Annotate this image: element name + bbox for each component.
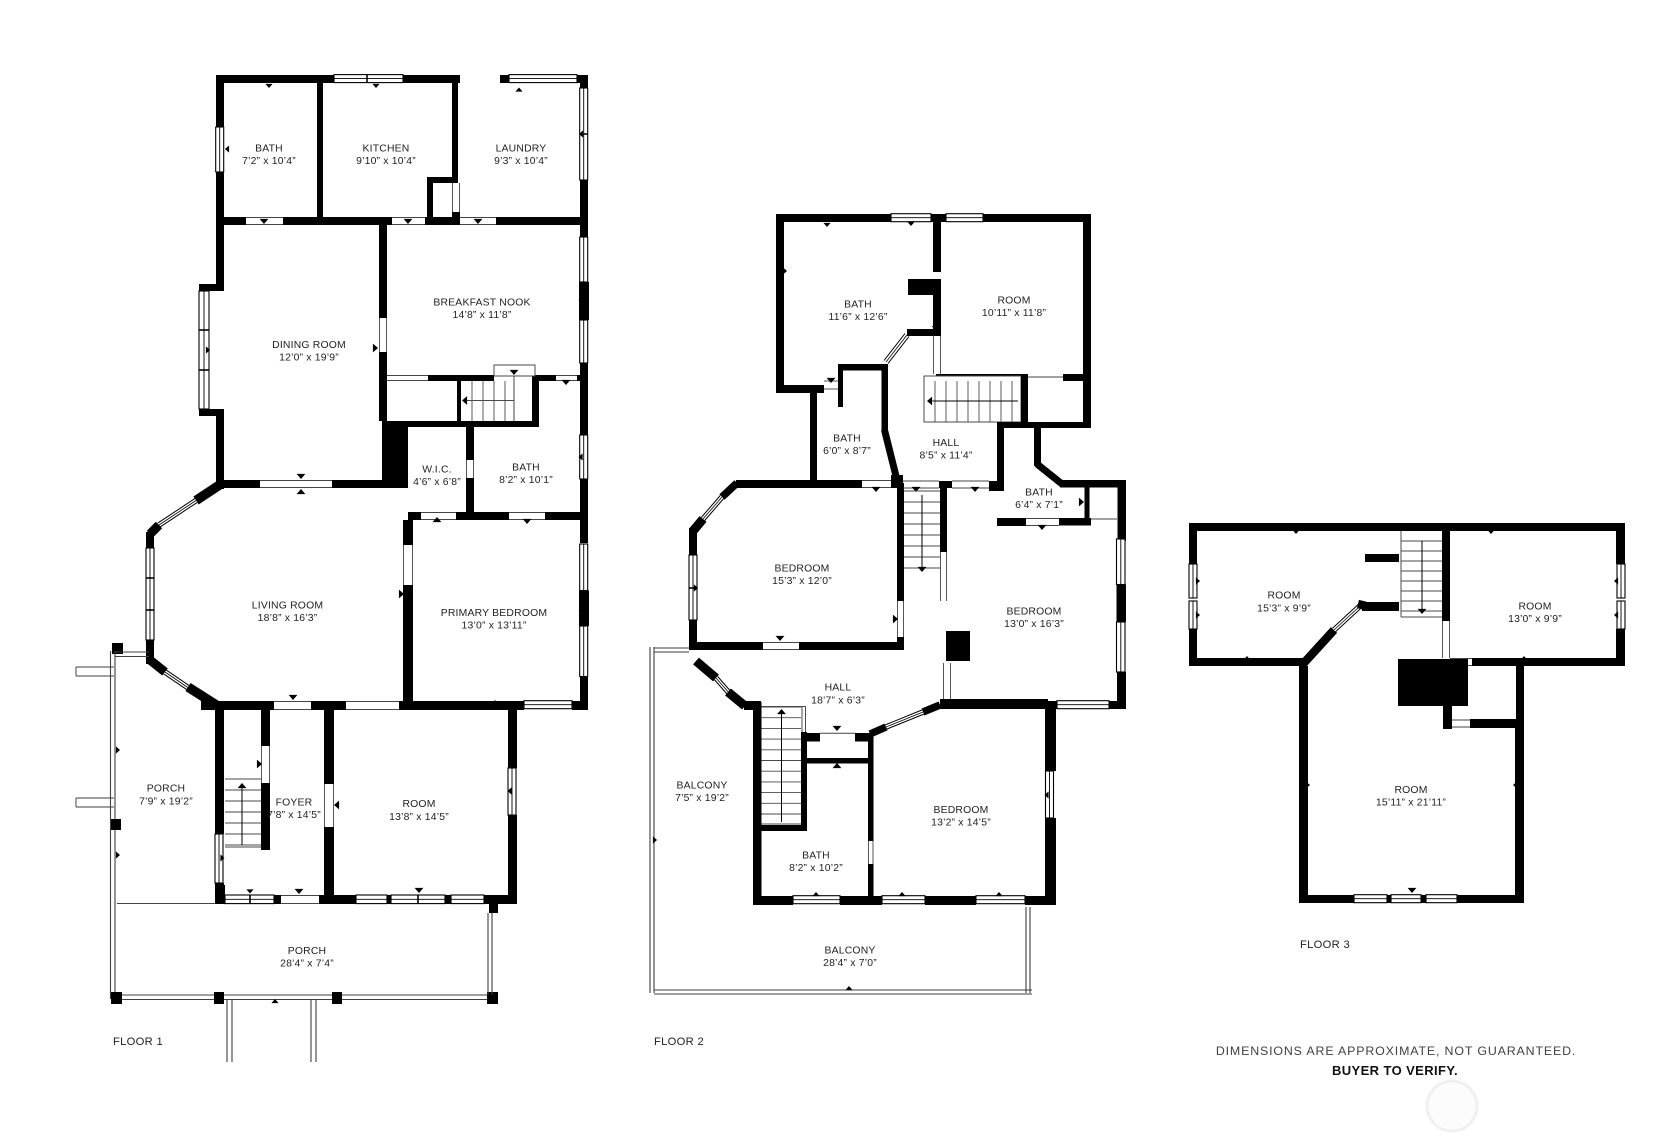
svg-text:ROOM: ROOM xyxy=(1394,785,1427,796)
svg-text:15’11” x 21’11”: 15’11” x 21’11” xyxy=(1376,798,1447,809)
svg-text:BATH: BATH xyxy=(802,850,830,861)
svg-text:14’8” x 11’8”: 14’8” x 11’8” xyxy=(452,310,511,321)
svg-text:7’9” x 19’2”: 7’9” x 19’2” xyxy=(139,796,193,807)
svg-text:9’10” x 10’4”: 9’10” x 10’4” xyxy=(356,156,416,167)
svg-text:15’3” x 12’0”: 15’3” x 12’0” xyxy=(772,576,832,587)
svg-text:FOYER: FOYER xyxy=(276,797,313,808)
svg-text:9’3” x 10’4”: 9’3” x 10’4” xyxy=(494,156,548,167)
svg-text:PORCH: PORCH xyxy=(147,784,186,795)
svg-text:28’4” x 7’4”: 28’4” x 7’4” xyxy=(280,959,334,970)
svg-text:FLOOR 1: FLOOR 1 xyxy=(113,1036,163,1048)
svg-text:BATH: BATH xyxy=(512,462,540,473)
svg-text:13’2” x 14’5”: 13’2” x 14’5” xyxy=(931,817,991,828)
svg-text:W.I.C.: W.I.C. xyxy=(422,464,452,475)
svg-text:PORCH: PORCH xyxy=(288,946,327,957)
svg-text:BATH: BATH xyxy=(844,300,872,311)
svg-text:LIVING ROOM: LIVING ROOM xyxy=(252,600,323,611)
svg-text:7’2” x 10’4”: 7’2” x 10’4” xyxy=(242,156,296,167)
svg-text:8’5” x 11’4”: 8’5” x 11’4” xyxy=(919,451,972,462)
svg-text:HALL: HALL xyxy=(933,438,960,449)
svg-text:DINING ROOM: DINING ROOM xyxy=(272,340,346,351)
svg-text:BATH: BATH xyxy=(833,434,861,445)
svg-text:18’7” x 6’3”: 18’7” x 6’3” xyxy=(811,695,865,706)
svg-text:13’0” x 16’3”: 13’0” x 16’3” xyxy=(1004,619,1064,630)
svg-text:BATH: BATH xyxy=(255,143,283,154)
svg-text:6’4” x 7’1”: 6’4” x 7’1” xyxy=(1015,500,1063,511)
svg-text:8’2” x 10’1”: 8’2” x 10’1” xyxy=(499,475,553,486)
svg-text:15’3” x 9’9”: 15’3” x 9’9” xyxy=(1257,603,1311,614)
svg-text:KITCHEN: KITCHEN xyxy=(362,143,409,154)
svg-text:6’0” x 8’7”: 6’0” x 8’7” xyxy=(823,446,871,457)
svg-text:BUYER TO VERIFY.: BUYER TO VERIFY. xyxy=(1332,1063,1458,1078)
svg-text:28’4” x 7’0”: 28’4” x 7’0” xyxy=(823,958,877,969)
svg-text:FLOOR 3: FLOOR 3 xyxy=(1300,939,1350,951)
svg-text:13’0” x 13’11”: 13’0” x 13’11” xyxy=(462,621,527,632)
svg-text:BATH: BATH xyxy=(1025,488,1053,499)
svg-text:13’8” x 14’5”: 13’8” x 14’5” xyxy=(389,812,449,823)
svg-text:8’2” x 10’2”: 8’2” x 10’2” xyxy=(789,863,843,874)
svg-text:ROOM: ROOM xyxy=(1518,601,1551,612)
svg-text:BREAKFAST NOOK: BREAKFAST NOOK xyxy=(433,297,530,308)
svg-text:4’6” x 6’8”: 4’6” x 6’8” xyxy=(413,477,461,488)
svg-text:12’0” x 19’9”: 12’0” x 19’9” xyxy=(279,352,339,363)
svg-text:BEDROOM: BEDROOM xyxy=(1006,607,1061,618)
svg-text:FLOOR 2: FLOOR 2 xyxy=(654,1036,704,1048)
svg-text:7’8” x 14’5”: 7’8” x 14’5” xyxy=(267,810,321,821)
svg-text:11’6” x 12’6”: 11’6” x 12’6” xyxy=(828,312,887,323)
svg-text:18’8” x 16’3”: 18’8” x 16’3” xyxy=(258,613,318,624)
svg-text:ROOM: ROOM xyxy=(402,799,435,810)
svg-text:7’5” x 19’2”: 7’5” x 19’2” xyxy=(675,793,729,804)
svg-text:LAUNDRY: LAUNDRY xyxy=(496,144,547,155)
svg-text:BALCONY: BALCONY xyxy=(676,781,727,792)
svg-text:PRIMARY BEDROOM: PRIMARY BEDROOM xyxy=(441,608,548,619)
svg-text:HALL: HALL xyxy=(825,683,852,694)
svg-text:ROOM: ROOM xyxy=(997,295,1030,306)
svg-text:BALCONY: BALCONY xyxy=(824,946,875,957)
svg-text:ROOM: ROOM xyxy=(1267,591,1300,602)
svg-text:BEDROOM: BEDROOM xyxy=(933,805,988,816)
svg-text:10’11” x 11’8”: 10’11” x 11’8” xyxy=(982,308,1047,319)
svg-text:13’0” x 9’9”: 13’0” x 9’9” xyxy=(1508,614,1562,625)
svg-text:DIMENSIONS ARE APPROXIMATE, NO: DIMENSIONS ARE APPROXIMATE, NOT GUARANTE… xyxy=(1216,1044,1576,1058)
svg-text:BEDROOM: BEDROOM xyxy=(774,563,829,574)
